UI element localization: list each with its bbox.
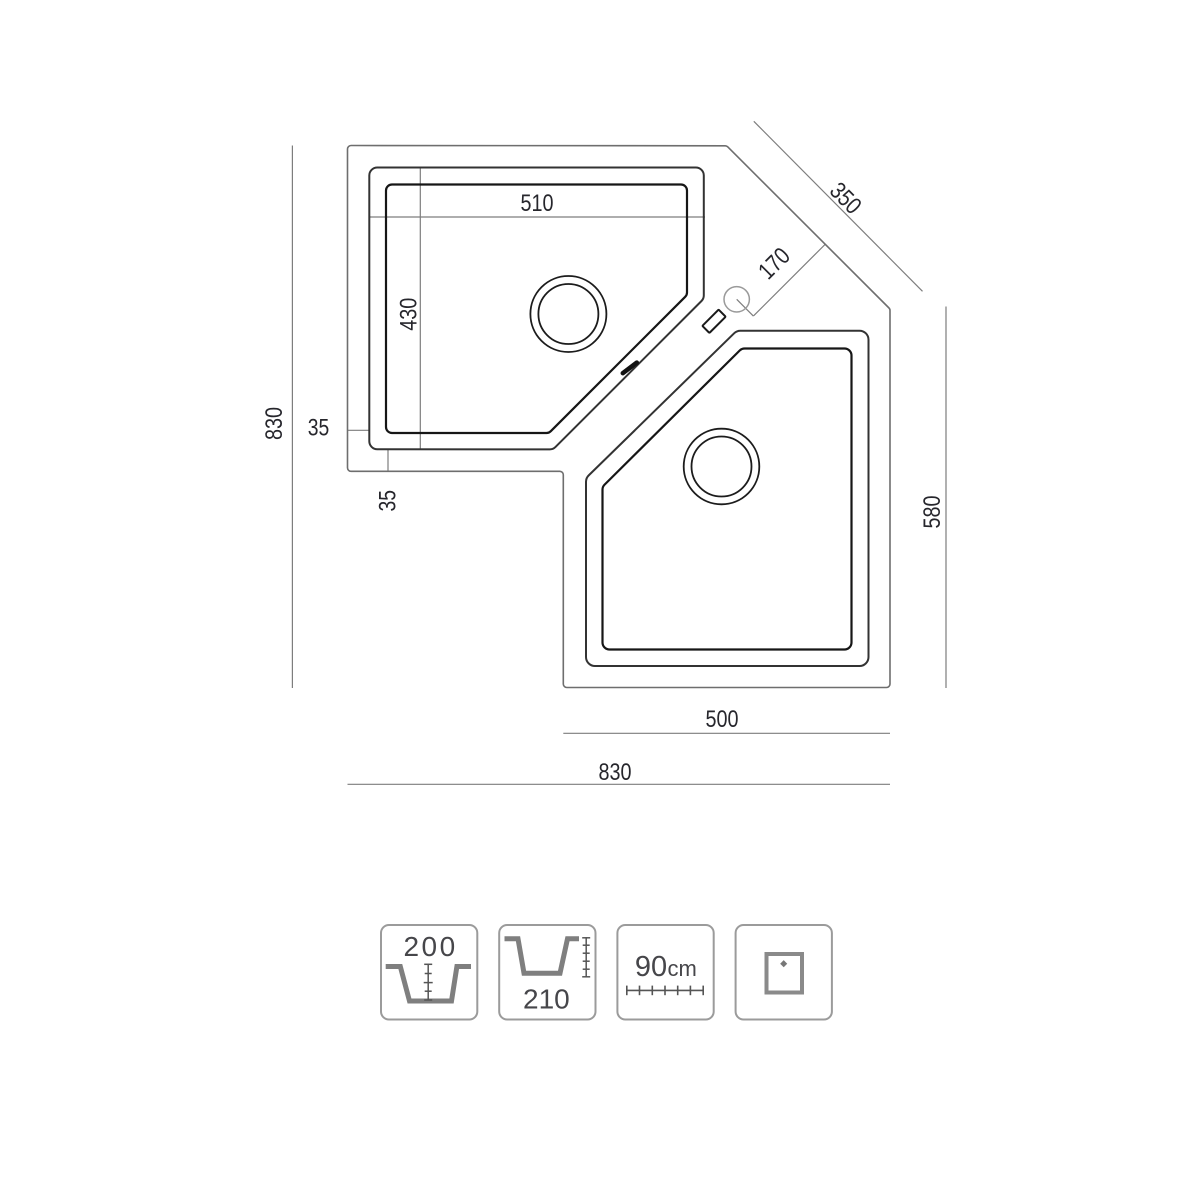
svg-text:830: 830 — [599, 759, 632, 786]
svg-text:510: 510 — [521, 190, 554, 217]
svg-text:580: 580 — [919, 496, 946, 529]
svg-text:500: 500 — [706, 706, 739, 733]
svg-text:90: 90 — [635, 951, 667, 983]
svg-text:35: 35 — [375, 490, 402, 512]
svg-text:830: 830 — [261, 407, 288, 440]
svg-text:430: 430 — [396, 298, 423, 331]
svg-text:200: 200 — [403, 931, 457, 962]
svg-text:35: 35 — [308, 415, 330, 442]
svg-text:cm: cm — [668, 956, 697, 981]
svg-text:210: 210 — [523, 983, 570, 1014]
